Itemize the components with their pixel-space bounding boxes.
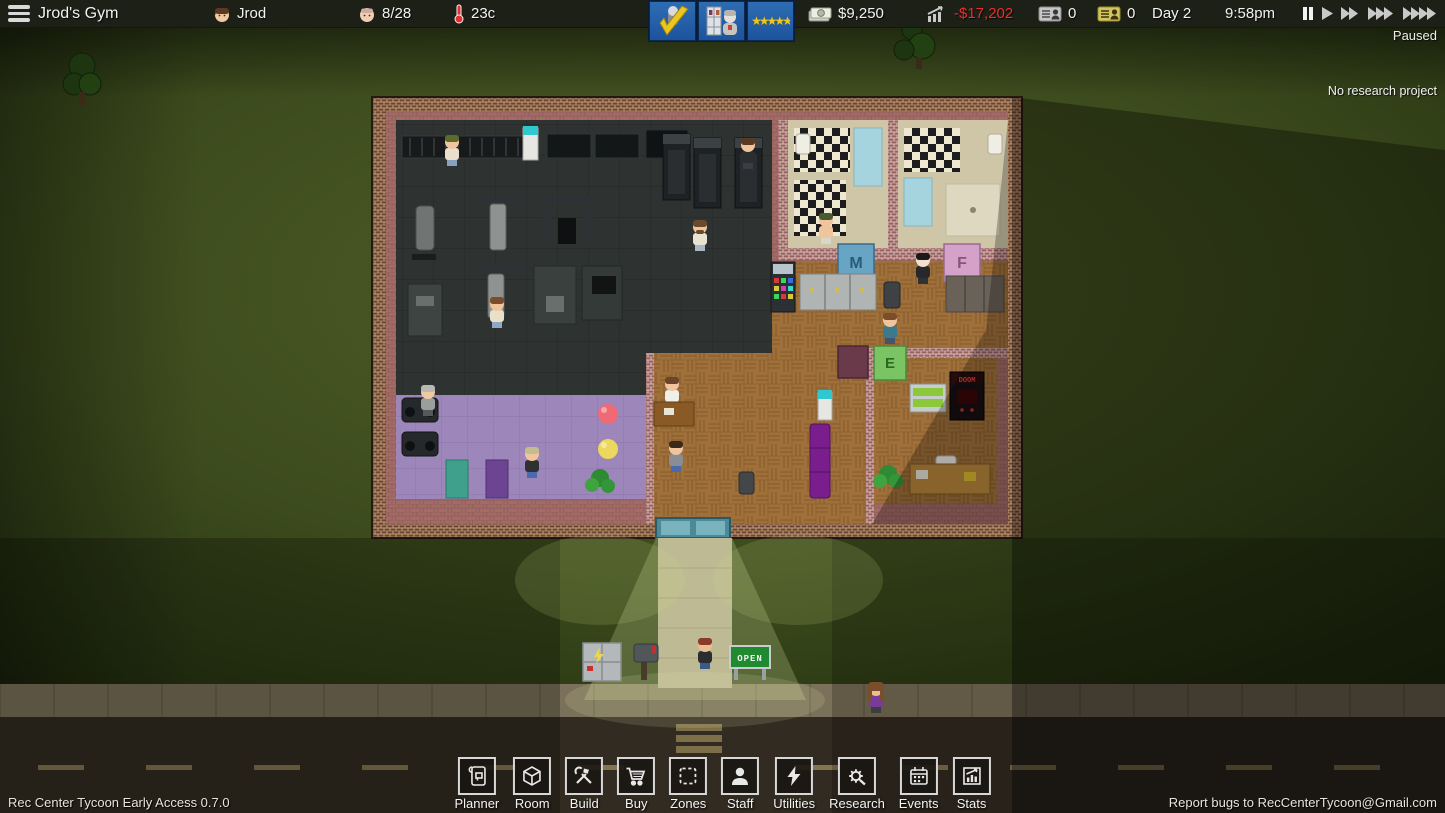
zones-button[interactable]: Zones <box>669 757 707 811</box>
treadmill <box>663 134 690 200</box>
menu-button[interactable] <box>8 5 30 22</box>
pause-button[interactable] <box>1301 5 1315 22</box>
person <box>669 441 683 472</box>
clock-time: 9:58pm <box>1225 0 1275 27</box>
shower <box>854 128 882 186</box>
vending-staff-icon <box>703 5 741 37</box>
profit-chart-icon <box>926 5 948 23</box>
employee-door[interactable]: E <box>874 346 906 380</box>
shopping-cart-icon <box>624 764 648 788</box>
version-label: Rec Center Tycoon Early Access 0.7.0 <box>8 795 230 810</box>
cash-info[interactable]: $9,250 <box>808 0 884 27</box>
person <box>693 220 707 251</box>
person-elderly <box>421 385 435 416</box>
game-world[interactable]: M F E <box>0 0 1445 813</box>
shower <box>904 178 932 226</box>
speed-1-button[interactable] <box>1320 5 1334 22</box>
person <box>883 313 897 344</box>
stats-button[interactable]: Stats <box>953 757 991 811</box>
room-icon <box>520 764 544 788</box>
toilet <box>796 134 810 154</box>
events-button[interactable]: Events <box>899 757 939 811</box>
weight-machine <box>534 266 576 324</box>
trash-can <box>884 282 900 308</box>
lobby-floor <box>654 353 868 524</box>
hall-door[interactable] <box>838 346 868 378</box>
svg-text:F: F <box>957 255 967 272</box>
gym-name: Jrod's Gym <box>38 0 118 27</box>
zones-dashed-square-icon <box>676 764 700 788</box>
yellow-card-icon <box>1097 5 1121 22</box>
yoga-mat <box>446 460 468 498</box>
cash-amount: $9,250 <box>838 0 884 27</box>
membership-info[interactable]: 0 <box>1097 0 1135 27</box>
wall-light-glow <box>515 535 685 625</box>
water-cooler <box>818 390 832 420</box>
rowing-machine <box>408 284 442 336</box>
player-name: Jrod <box>237 0 266 27</box>
vending-machine <box>771 262 795 312</box>
staff-person-icon <box>728 764 752 788</box>
person <box>490 297 504 328</box>
weight-machine <box>582 266 622 320</box>
stats-chart-icon <box>960 764 984 788</box>
lightning-bolt-icon <box>782 764 806 788</box>
notification-staff-machine[interactable] <box>698 1 745 41</box>
yellow-card-count: 0 <box>1127 0 1135 27</box>
profit-info[interactable]: -$17,202 <box>926 0 1013 27</box>
wall-light-glow <box>713 535 883 625</box>
thermometer-icon <box>453 4 465 24</box>
yoga-mat <box>486 460 508 498</box>
utility-box[interactable] <box>583 643 621 681</box>
speed-3-button[interactable] <box>1366 5 1396 22</box>
exercise-ball <box>598 404 618 424</box>
notification-rating[interactable]: ★★★★★ <box>747 1 794 41</box>
crosswalk <box>676 724 722 753</box>
planner-icon <box>465 764 489 788</box>
speed-2-button[interactable] <box>1339 5 1361 22</box>
speed-controls <box>1301 0 1439 27</box>
player-info[interactable]: Jrod <box>213 0 266 27</box>
couch <box>810 424 830 498</box>
svg-text:E: E <box>885 355 895 372</box>
members-icon <box>358 5 376 23</box>
exercise-ball <box>598 439 618 459</box>
build-hammer-wrench-icon <box>572 764 596 788</box>
barbell-rack <box>547 134 591 158</box>
calendar-icon <box>907 764 931 788</box>
day-pass-info[interactable]: 0 <box>1038 0 1076 27</box>
svg-text:OPEN: OPEN <box>737 654 763 664</box>
speed-4-button[interactable] <box>1401 5 1439 22</box>
day-counter: Day 2 <box>1152 0 1191 27</box>
notification-task-complete[interactable] <box>649 1 696 41</box>
temperature-info[interactable]: 23c <box>453 0 495 27</box>
gear-wrench-icon <box>845 764 869 788</box>
report-bugs-label: Report bugs to RecCenterTycoon@Gmail.com <box>1169 795 1437 810</box>
temperature: 23c <box>471 0 495 27</box>
notification-panel: ★★★★★ <box>648 0 795 42</box>
hamburger-icon <box>8 5 30 9</box>
member-count-info[interactable]: 8/28 <box>358 0 411 27</box>
buy-button[interactable]: Buy <box>617 757 655 811</box>
person <box>741 138 755 169</box>
utilities-button[interactable]: Utilities <box>773 757 815 811</box>
player-avatar-icon <box>213 5 231 23</box>
planner-button[interactable]: Planner <box>454 757 499 811</box>
exercise-bike <box>402 432 438 456</box>
staff-button[interactable]: Staff <box>721 757 759 811</box>
star-rating: ★★★★★ <box>751 2 790 40</box>
svg-text:M: M <box>849 255 862 272</box>
gray-card-icon <box>1038 5 1062 22</box>
person <box>445 135 459 166</box>
build-button[interactable]: Build <box>565 757 603 811</box>
toilet <box>988 134 1002 154</box>
person <box>819 213 833 244</box>
barbell-rack <box>595 134 639 158</box>
checkmark-icon <box>654 5 692 37</box>
research-button[interactable]: Research <box>829 757 885 811</box>
room-button[interactable]: Room <box>513 757 551 811</box>
paused-indicator: Paused <box>1393 28 1437 43</box>
entrance-doors[interactable] <box>656 518 730 538</box>
money-icon <box>808 5 832 23</box>
trash-can <box>739 472 754 494</box>
lockers <box>800 274 876 310</box>
reception-desk[interactable] <box>654 402 694 426</box>
person[interactable] <box>698 638 712 669</box>
gray-card-count: 0 <box>1068 0 1076 27</box>
treadmill <box>694 138 721 208</box>
member-count: 8/28 <box>382 0 411 27</box>
person <box>525 447 539 478</box>
research-status: No research project <box>1328 84 1437 98</box>
bottom-toolbar: Planner Room Build Buy Zones <box>454 757 990 811</box>
person <box>916 253 930 284</box>
profit-amount: -$17,202 <box>954 0 1013 27</box>
bench <box>416 206 434 250</box>
game-screen: M F E <box>0 0 1445 813</box>
